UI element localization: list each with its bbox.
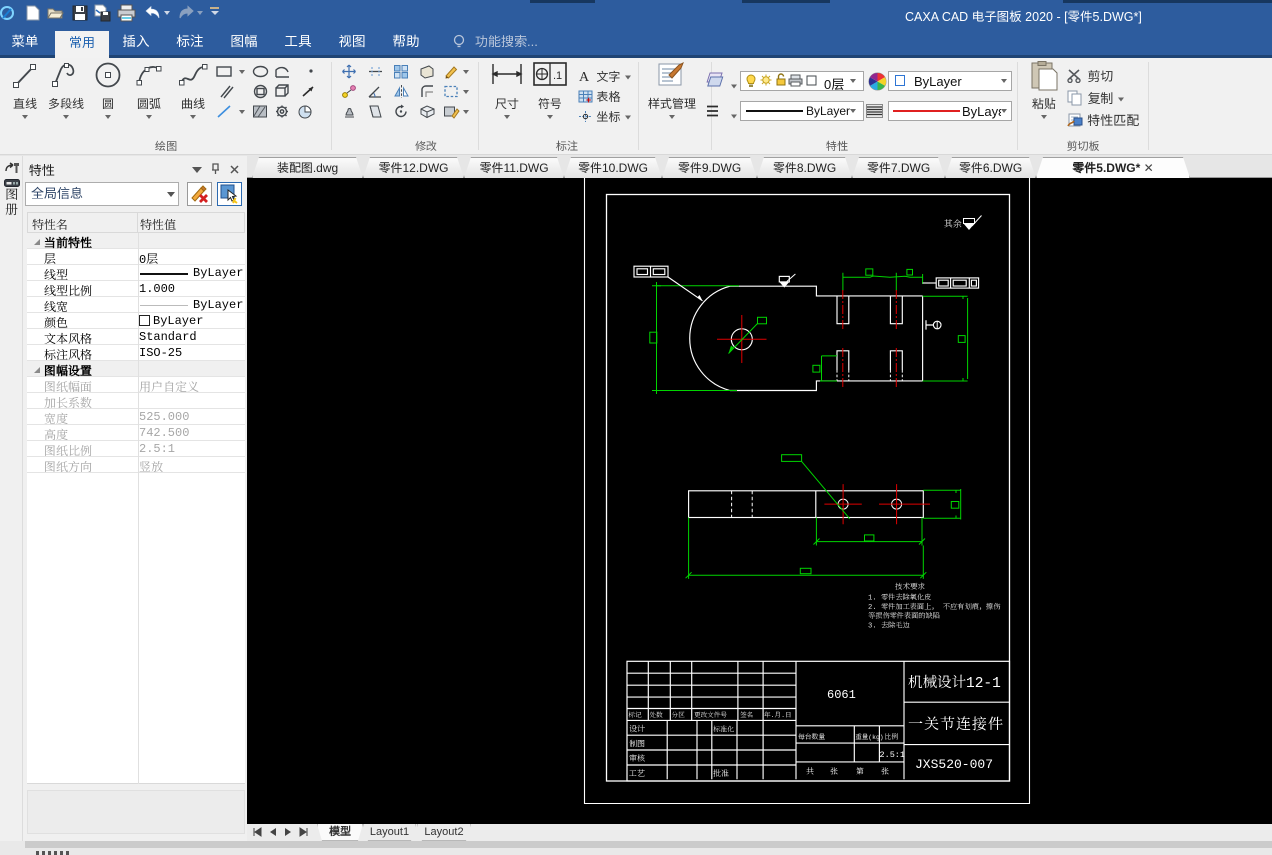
svg-text:重量(kg): 重量(kg) xyxy=(856,733,884,741)
svg-text:签名: 签名 xyxy=(740,711,754,719)
svg-text:张: 张 xyxy=(830,767,838,777)
svg-text:等损伤零件表面的缺陷: 等损伤零件表面的缺陷 xyxy=(868,611,940,621)
svg-text:6061: 6061 xyxy=(827,688,856,702)
svg-text:A: A xyxy=(579,70,590,83)
svg-text:1. 零件去除氧化皮: 1. 零件去除氧化皮 xyxy=(868,592,931,602)
svg-text:第: 第 xyxy=(856,767,864,777)
svg-text:技术要求: 技术要求 xyxy=(895,582,925,592)
svg-text:工艺: 工艺 xyxy=(628,769,645,779)
svg-text:其余: 其余 xyxy=(944,219,962,230)
svg-text:机械设计12-1: 机械设计12-1 xyxy=(908,674,1001,692)
svg-text:更改文件号: 更改文件号 xyxy=(694,711,727,719)
svg-text:比例: 比例 xyxy=(885,732,899,742)
svg-text:制图: 制图 xyxy=(629,739,645,749)
svg-text:审核: 审核 xyxy=(629,753,645,764)
svg-text:每台数量: 每台数量 xyxy=(798,732,825,742)
svg-text:JXS520-007: JXS520-007 xyxy=(915,757,993,772)
svg-text:3. 去除毛边: 3. 去除毛边 xyxy=(868,621,911,631)
svg-text:+: + xyxy=(586,95,591,103)
svg-text:批准: 批准 xyxy=(713,769,729,779)
svg-text:标记: 标记 xyxy=(629,711,643,719)
svg-text:2.5:1: 2.5:1 xyxy=(880,750,906,760)
svg-text:处数: 处数 xyxy=(650,711,664,719)
svg-text:一关节连接件: 一关节连接件 xyxy=(908,716,1004,734)
svg-text:共: 共 xyxy=(806,767,814,777)
svg-text:2. 零件加工表面上， 不应有划痕，擦伤: 2. 零件加工表面上， 不应有划痕，擦伤 xyxy=(868,602,1001,612)
svg-text:分区: 分区 xyxy=(672,711,686,719)
svg-text:标准化: 标准化 xyxy=(713,725,734,735)
svg-text:年.月.日: 年.月.日 xyxy=(764,711,792,719)
svg-text:张: 张 xyxy=(881,767,889,777)
svg-text:.1: .1 xyxy=(553,70,562,82)
svg-text:设计: 设计 xyxy=(629,725,645,735)
